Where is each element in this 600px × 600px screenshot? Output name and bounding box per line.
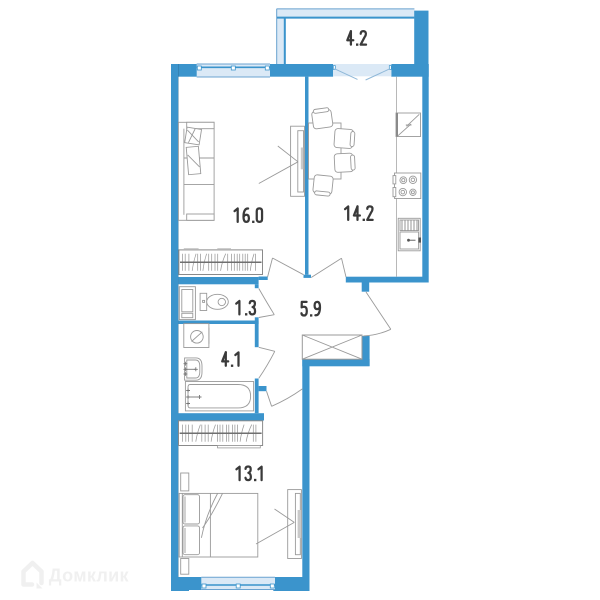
svg-text:Домклик: Домклик <box>49 565 130 585</box>
